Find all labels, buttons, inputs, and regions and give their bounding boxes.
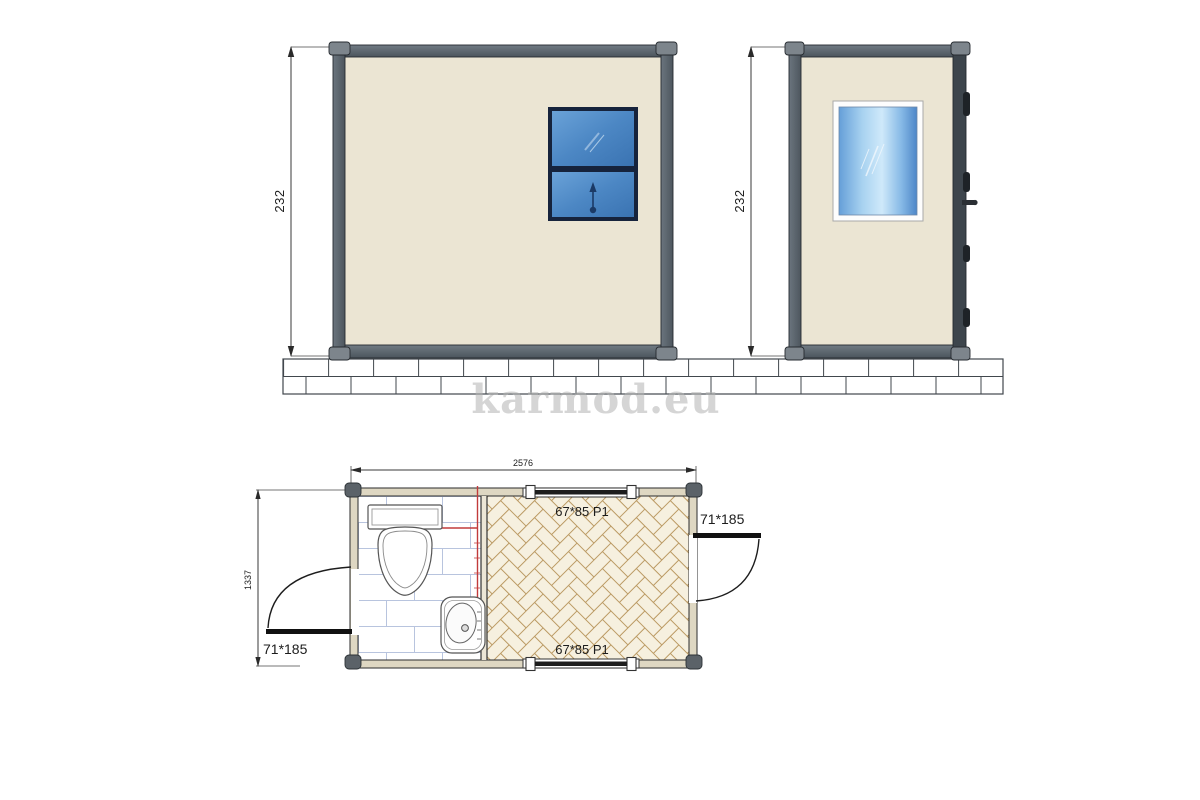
left-door-leaf: [266, 629, 352, 634]
front-elevation: 232: [272, 42, 677, 360]
right-door-label: 71*185: [700, 511, 745, 527]
right-door-leaf: [693, 533, 761, 538]
front-window-top-pane: [552, 111, 634, 166]
sink: [441, 597, 485, 653]
side-window: [833, 101, 923, 221]
plan-depth-label: 1337: [243, 570, 253, 590]
left-door-label: 71*185: [263, 641, 308, 657]
right-door-swing-arc: [696, 539, 759, 601]
front-height-label: 232: [272, 189, 287, 212]
door-handle-icon: [962, 200, 978, 205]
technical-drawing-page: karmod.eu 232: [0, 0, 1200, 800]
front-window: [548, 107, 638, 221]
right-door: 71*185: [693, 511, 761, 601]
side-height-dimension: 232: [732, 46, 789, 357]
top-window-label: 67*85 P1: [555, 504, 609, 519]
left-door: 71*185: [263, 567, 352, 657]
watermark-text: karmod.eu: [471, 376, 720, 423]
floor-plan: 2576 1337: [243, 458, 761, 671]
drawing-svg: karmod.eu 232: [0, 0, 1200, 800]
left-door-swing-arc: [268, 567, 351, 628]
bottom-window-label: 67*85 P1: [555, 642, 609, 657]
plan-width-dimension: 2576: [350, 458, 697, 487]
right-door-opening: [689, 535, 697, 603]
left-door-opening: [351, 569, 359, 635]
side-elevation: 232: [732, 42, 978, 360]
front-height-dimension: 232: [272, 46, 333, 357]
plan-width-label: 2576: [513, 458, 533, 468]
faucet-icon: [462, 625, 469, 632]
side-height-label: 232: [732, 189, 747, 212]
